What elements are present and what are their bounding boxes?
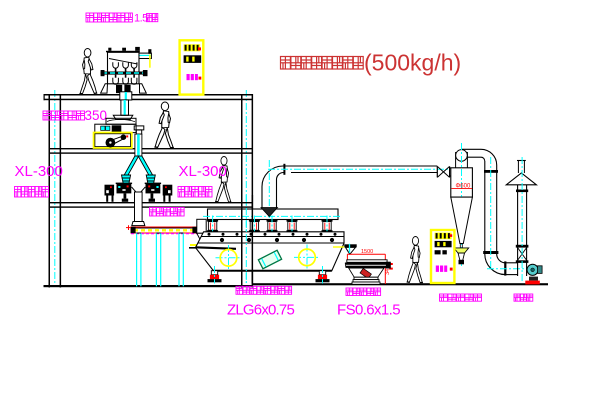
svg-text:1.5: 1.5 [134,13,148,25]
svg-text:Φ600: Φ600 [456,184,471,190]
svg-text:1500: 1500 [361,249,373,255]
svg-text:XL-300: XL-300 [15,163,63,180]
svg-text:(500kg/h): (500kg/h) [364,50,461,76]
svg-text:XL-300: XL-300 [179,163,227,180]
svg-text:FS0.6x1.5: FS0.6x1.5 [337,302,400,319]
svg-text:ZLG6x0.75: ZLG6x0.75 [227,302,294,319]
svg-text:350: 350 [85,108,108,123]
